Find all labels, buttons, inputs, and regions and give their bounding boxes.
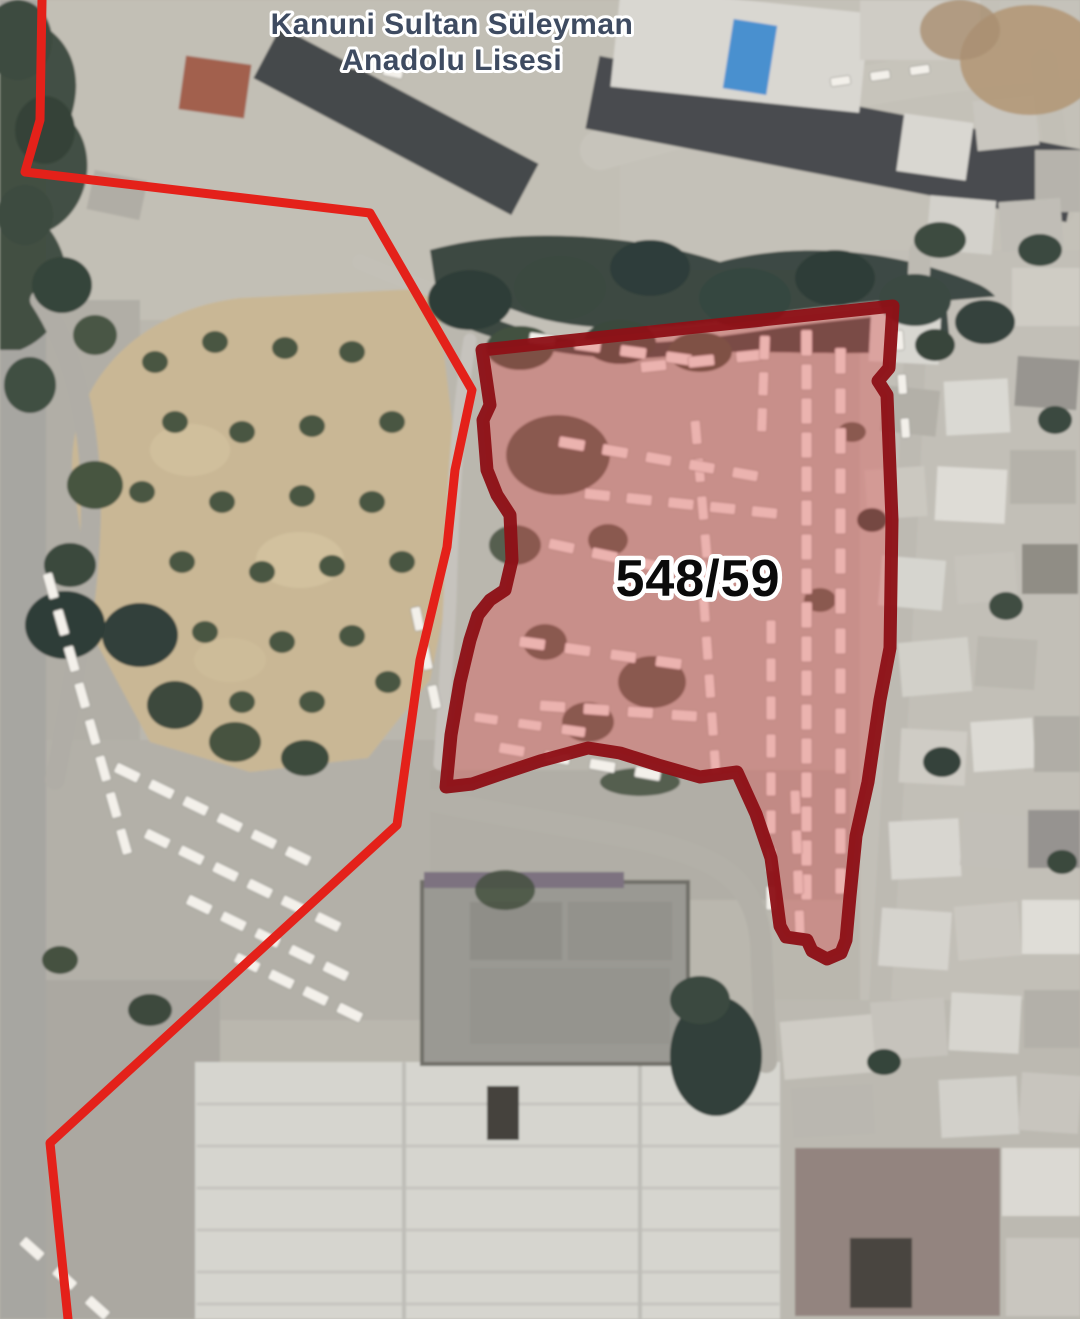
school-label-line1: Kanuni Sultan Süleyman <box>271 8 634 41</box>
parcel-number-label[interactable]: 548/59 <box>615 550 780 608</box>
school-label-line2: Anadolu Lisesi <box>342 44 562 77</box>
map-screenshot: Kanuni Sultan Süleyman Anadolu Lisesi 54… <box>0 0 1080 1319</box>
satellite-map[interactable]: Kanuni Sultan Süleyman Anadolu Lisesi 54… <box>0 0 1080 1319</box>
